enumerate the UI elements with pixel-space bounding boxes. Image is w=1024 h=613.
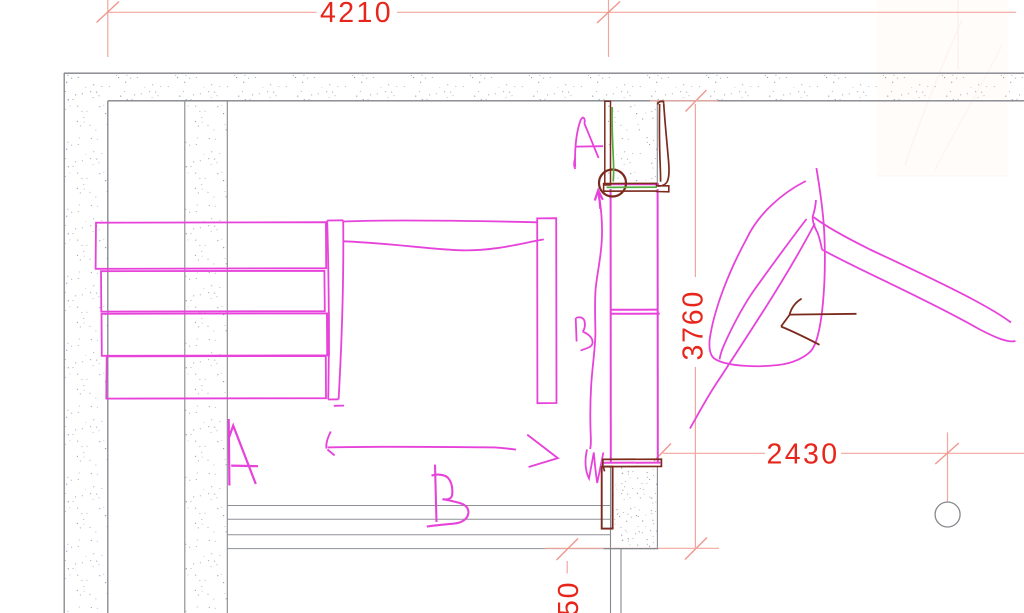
svg-text:4210: 4210 (320, 0, 393, 29)
svg-text:2430: 2430 (766, 438, 839, 470)
svg-text:50: 50 (553, 581, 585, 613)
svg-text:3760: 3760 (677, 290, 709, 361)
